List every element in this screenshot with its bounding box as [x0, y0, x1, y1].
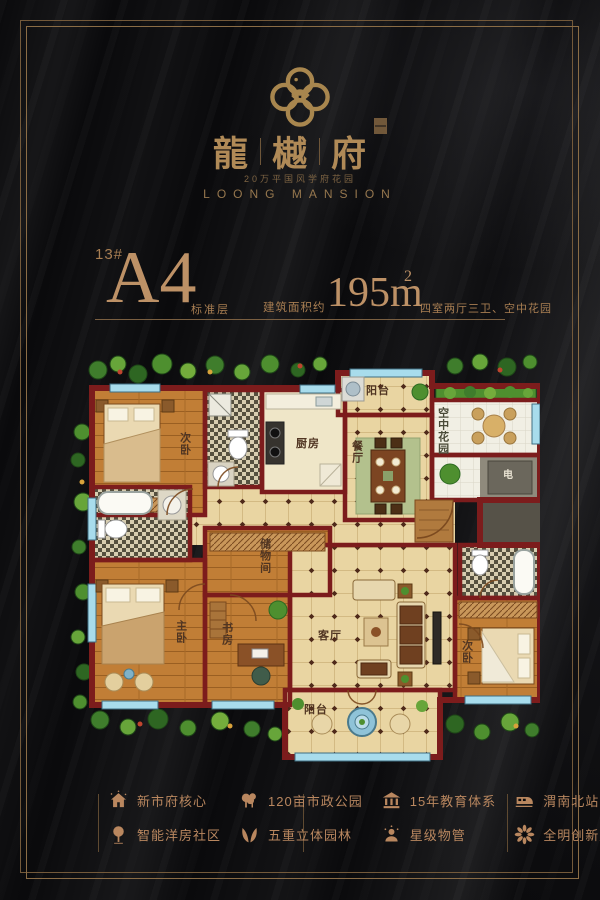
brand-separator [319, 138, 320, 165]
service-star-icon [381, 824, 402, 845]
floor-plan-drawing [70, 352, 540, 764]
feature-label: 全明创新户型 [543, 825, 600, 844]
feature-label: 120亩市政公园 [268, 791, 363, 810]
park-trees-icon [239, 790, 260, 811]
flower-icon [514, 824, 535, 845]
tree-icon [108, 824, 129, 845]
logo-knot-icon [269, 66, 331, 133]
header-rule [95, 319, 505, 320]
train-icon [514, 790, 535, 811]
feature-label: 渭南北站 [543, 791, 599, 810]
feature-label: 新市府核心 [137, 791, 207, 810]
brand-char: 府 [331, 126, 367, 177]
room-label-living: 客厅 [318, 630, 342, 643]
feature-label: 星级物管 [410, 825, 466, 844]
feature-label: 智能洋房社区 [137, 825, 221, 844]
brand-name-en: LOONG MANSION [0, 187, 600, 201]
room-label-elevator: 电 [503, 470, 514, 482]
feature-item: 全明创新户型 [514, 824, 600, 845]
feature-item: 星级物管 [381, 824, 496, 845]
layout-description: 四室两厅三卫、空中花园 [420, 300, 552, 316]
poster: 龍 樾 府 20万平国风学府花园 LOONG MANSION 13# A4 标准… [0, 0, 600, 900]
brand-tagline: 20万平国风学府花园 [0, 172, 600, 185]
room-label-storage: 储物间 [258, 538, 271, 574]
area-label: 建筑面积约 [263, 299, 326, 315]
room-label-dining: 餐厅 [350, 440, 363, 464]
brand-char: 樾 [272, 126, 308, 177]
feature-item: 120亩市政公园 [239, 790, 363, 811]
education-icon [381, 790, 402, 811]
house-icon [108, 790, 129, 811]
room-label-bedroom-left: 次卧 [178, 432, 191, 456]
brand-name: 龍 樾 府 [0, 126, 600, 177]
unit-type: A4 [106, 240, 196, 318]
room-label-study: 书房 [220, 622, 233, 646]
feature-item: 渭南北站 [514, 790, 600, 811]
floor-plan: 次卧 厨房 阳台 餐厅 空中花园 电 储物间 主卧 书房 客厅 阳台 次卧 [70, 352, 540, 764]
room-label-bedroom-right: 次卧 [460, 640, 473, 664]
feature-item: 五重立体园林 [239, 824, 363, 845]
room-label-balcony-top: 阳台 [366, 385, 390, 398]
room-label-sky-garden: 空中花园 [436, 407, 449, 455]
area-superscript: 2 [404, 268, 412, 286]
room-label-kitchen: 厨房 [296, 438, 320, 451]
feature-item: 新市府核心 [108, 790, 221, 811]
brand-separator [260, 138, 261, 165]
brand-seal-icon [374, 118, 387, 134]
wings-icon [239, 824, 260, 845]
room-label-balcony-bottom: 阳台 [304, 704, 328, 717]
feature-label: 15年教育体系 [410, 791, 496, 810]
feature-item: 智能洋房社区 [108, 824, 221, 845]
feature-label: 五重立体园林 [268, 825, 352, 844]
floor-note: 标准层 [191, 301, 230, 317]
feature-list: 新市府核心 120亩市政公园 15年教育体系 渭南北站 [108, 790, 508, 845]
feature-divider [98, 794, 99, 852]
room-label-master: 主卧 [174, 620, 187, 644]
feature-item: 15年教育体系 [381, 790, 496, 811]
brand-char: 龍 [213, 126, 249, 177]
